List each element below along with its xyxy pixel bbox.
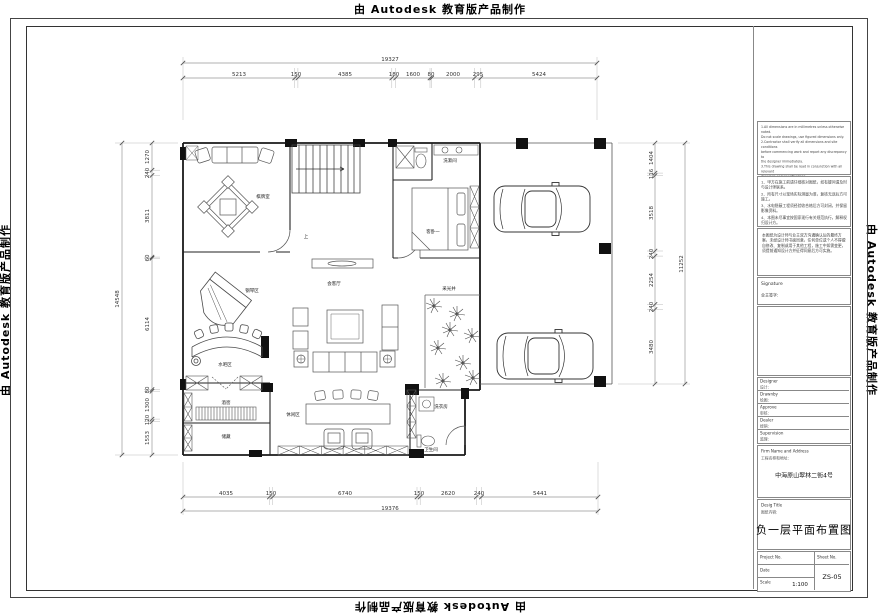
info-grid-line — [757, 577, 814, 578]
room-label-card-room: 棋牌室 — [256, 193, 270, 200]
garden-plants — [426, 298, 481, 388]
note-en-line: 3.This drawing shall be read in conjunct… — [761, 165, 849, 175]
card-room-sofa — [186, 146, 275, 164]
dim-top-seg: 295 — [473, 70, 484, 77]
dim-bottom-seg: 6740 — [338, 489, 352, 496]
role-supervision-label: Supervision — [760, 431, 783, 436]
dim-right-seg: 1404 — [647, 151, 654, 165]
leisure-table — [306, 390, 390, 449]
date-label: Date — [760, 568, 770, 573]
note-cn-item: 3、水电隐蔽工程须经验收合格后方可封闭，并保留影像资料。 — [761, 204, 849, 214]
owner-signature-label: 业主签字: — [761, 292, 778, 298]
firm-label-cn: 工程名称和地址: — [761, 455, 789, 461]
car-bottom — [497, 330, 593, 383]
dim-top-seg: 150 — [291, 70, 302, 77]
role-approve-cn: 审核: — [760, 410, 769, 416]
room-label-toilet: 卫生间 — [424, 446, 438, 453]
signature-heading: Signature — [761, 282, 783, 287]
role-dealer-label: Dealer — [760, 418, 773, 423]
role-drawnby-cn: 绘图: — [760, 397, 769, 403]
room-label-living-room: 会客厅 — [327, 280, 341, 287]
title-block-statement: 本图纸为设计师与业主双方沟通确认后的最终方案，未经设计师书面同意，任何单位或个人… — [757, 228, 851, 276]
design-title-label-cn: 图纸内容: — [761, 509, 777, 515]
dim-left-seg: 1270 — [143, 150, 150, 164]
role-dealer-cn: 经销: — [760, 423, 769, 429]
statement-paragraph: 本图纸为设计师与业主双方沟通确认后的最终方案，未经设计师书面同意，任何单位或个人… — [762, 233, 848, 254]
car-top — [494, 183, 590, 236]
info-grid-line — [814, 564, 849, 565]
role-drawnby-label: Drawnby — [760, 392, 778, 397]
dim-left-seg: 80 — [143, 387, 150, 394]
bed — [412, 188, 468, 250]
room-label-wine-cellar: 酒窖 — [221, 399, 230, 406]
room-label-guest-bedroom: 客卧一 — [426, 228, 440, 235]
dim-top-seg: 4385 — [338, 70, 352, 77]
role-designer-label: Designer — [760, 379, 778, 384]
dim-top-seg: 2000 — [446, 70, 460, 77]
dim-left-seg: 240 — [143, 168, 150, 179]
role-supervision-cn: 监理: — [760, 436, 769, 442]
dim-left-seg: 1553 — [143, 431, 150, 445]
room-label-leisure-area: 休闲区 — [286, 411, 300, 418]
dim-left-seg: 6114 — [143, 317, 150, 331]
title-block-signature: Signature 业主签字: — [757, 277, 851, 305]
stair-up-label: 上 — [304, 233, 309, 240]
room-label-piano-area: 钢琴区 — [245, 287, 259, 294]
room-label-lightwell: 采光井 — [442, 285, 456, 292]
wardrobe — [470, 186, 479, 248]
note-cn-item: 4、本图未尽事宜按国家现行有关规范执行，解释权归设计方。 — [761, 215, 849, 225]
note-en-line: before commencing work and report any di… — [761, 150, 849, 160]
role-designer-cn: 设计: — [760, 384, 769, 390]
dim-top-seg: 80 — [428, 70, 435, 77]
floor-plan — [0, 0, 878, 616]
dim-right-seg: 2254 — [647, 273, 654, 287]
note-en-line: 1.All dimensions are in millimetres unle… — [761, 125, 849, 135]
dim-bottom-seg: 240 — [474, 489, 485, 496]
witness-lines — [115, 57, 690, 515]
dim-bottom-seg: 5441 — [533, 489, 547, 496]
dim-top-total: 19327 — [381, 56, 399, 63]
dim-top-seg: 5213 — [232, 70, 246, 77]
dim-left-seg: 120 — [143, 415, 150, 426]
room-label-bar-area: 水吧区 — [218, 361, 232, 368]
dim-bottom-seg: 4035 — [219, 489, 233, 496]
sheet-no-label: Sheet No. — [817, 555, 836, 560]
dim-right-seg: 240 — [647, 302, 654, 313]
dim-top-seg: 180 — [389, 70, 400, 77]
title-block-notes-en: 1.All dimensions are in millimetres unle… — [757, 121, 851, 175]
info-grid-line — [757, 564, 814, 565]
bathroom-fixtures — [396, 145, 478, 168]
sofa-set — [293, 259, 398, 372]
scale-label: Scale — [760, 580, 771, 585]
sheet-number: ZS-05 — [822, 573, 841, 581]
room-label-storage: 储藏 — [221, 433, 230, 440]
design-title-label-en: Desig Title — [761, 503, 782, 508]
bar-counter — [192, 323, 263, 366]
dim-right-seg: 3518 — [647, 206, 654, 220]
title-block-notes-cn: 1、甲方在施工前请仔细核对图纸，如有疑问请及时与设计师联系。 2、所有尺寸以现场… — [757, 176, 851, 227]
firm-label-en: Firm Name and Address — [761, 449, 809, 454]
room-label-laundry: 洗衣房 — [434, 403, 448, 410]
dim-bottom-seg: 150 — [266, 489, 277, 496]
note-en-line: 2.Contractor shall verify all dimensions… — [761, 140, 849, 150]
sheet-title: 负一层平面布置图 — [756, 521, 852, 537]
title-block-empty-box — [757, 306, 851, 376]
dim-top-seg: 5424 — [532, 70, 546, 77]
dim-left-seg: 3811 — [143, 209, 150, 223]
drawing-sheet: 由 Autodesk 教育版产品制作 由 Autodesk 教育版产品制作 由 … — [0, 0, 878, 616]
dim-bottom-total: 19376 — [381, 504, 399, 511]
project-no-label: Project No. — [760, 555, 782, 560]
dim-left-total: 14548 — [113, 290, 120, 308]
dim-left-seg: 60 — [143, 255, 150, 262]
grand-piano — [190, 272, 252, 333]
dim-left-seg: 1300 — [143, 398, 150, 412]
staircase — [292, 145, 360, 193]
bottom-cabinet-hatch — [278, 446, 408, 455]
note-cn-item: 2、所有尺寸以现场实际测量为准，复核无误后方可施工。 — [761, 192, 849, 202]
dim-bottom-seg: 2620 — [441, 489, 455, 496]
project-address: 中海原山翠林二街4号 — [775, 471, 833, 480]
title-block-firm: Firm Name and Address 工程名称和地址: 中海原山翠林二街4… — [757, 445, 851, 498]
mahjong-table — [198, 176, 259, 238]
dim-top-seg: 1600 — [406, 70, 420, 77]
role-approve-label: Approve — [760, 405, 777, 410]
scale-value: 1:100 — [792, 581, 808, 588]
info-grid-divider — [814, 551, 815, 590]
dim-right-total: 11252 — [677, 255, 684, 273]
title-block-design-title: Desig Title 图纸内容: 负一层平面布置图 — [757, 499, 851, 550]
dim-right-seg: 116 — [647, 169, 654, 180]
dim-right-seg: 3480 — [647, 340, 654, 354]
dim-bottom-seg: 150 — [414, 489, 425, 496]
room-label-wash-room: 洗漱间 — [443, 157, 457, 164]
laundry-fixtures — [407, 390, 435, 447]
wine-rack — [184, 376, 262, 451]
note-cn-item: 1、甲方在施工前请仔细核对图纸，如有疑问请及时与设计师联系。 — [761, 180, 849, 190]
dim-right-seg: 240 — [647, 249, 654, 260]
